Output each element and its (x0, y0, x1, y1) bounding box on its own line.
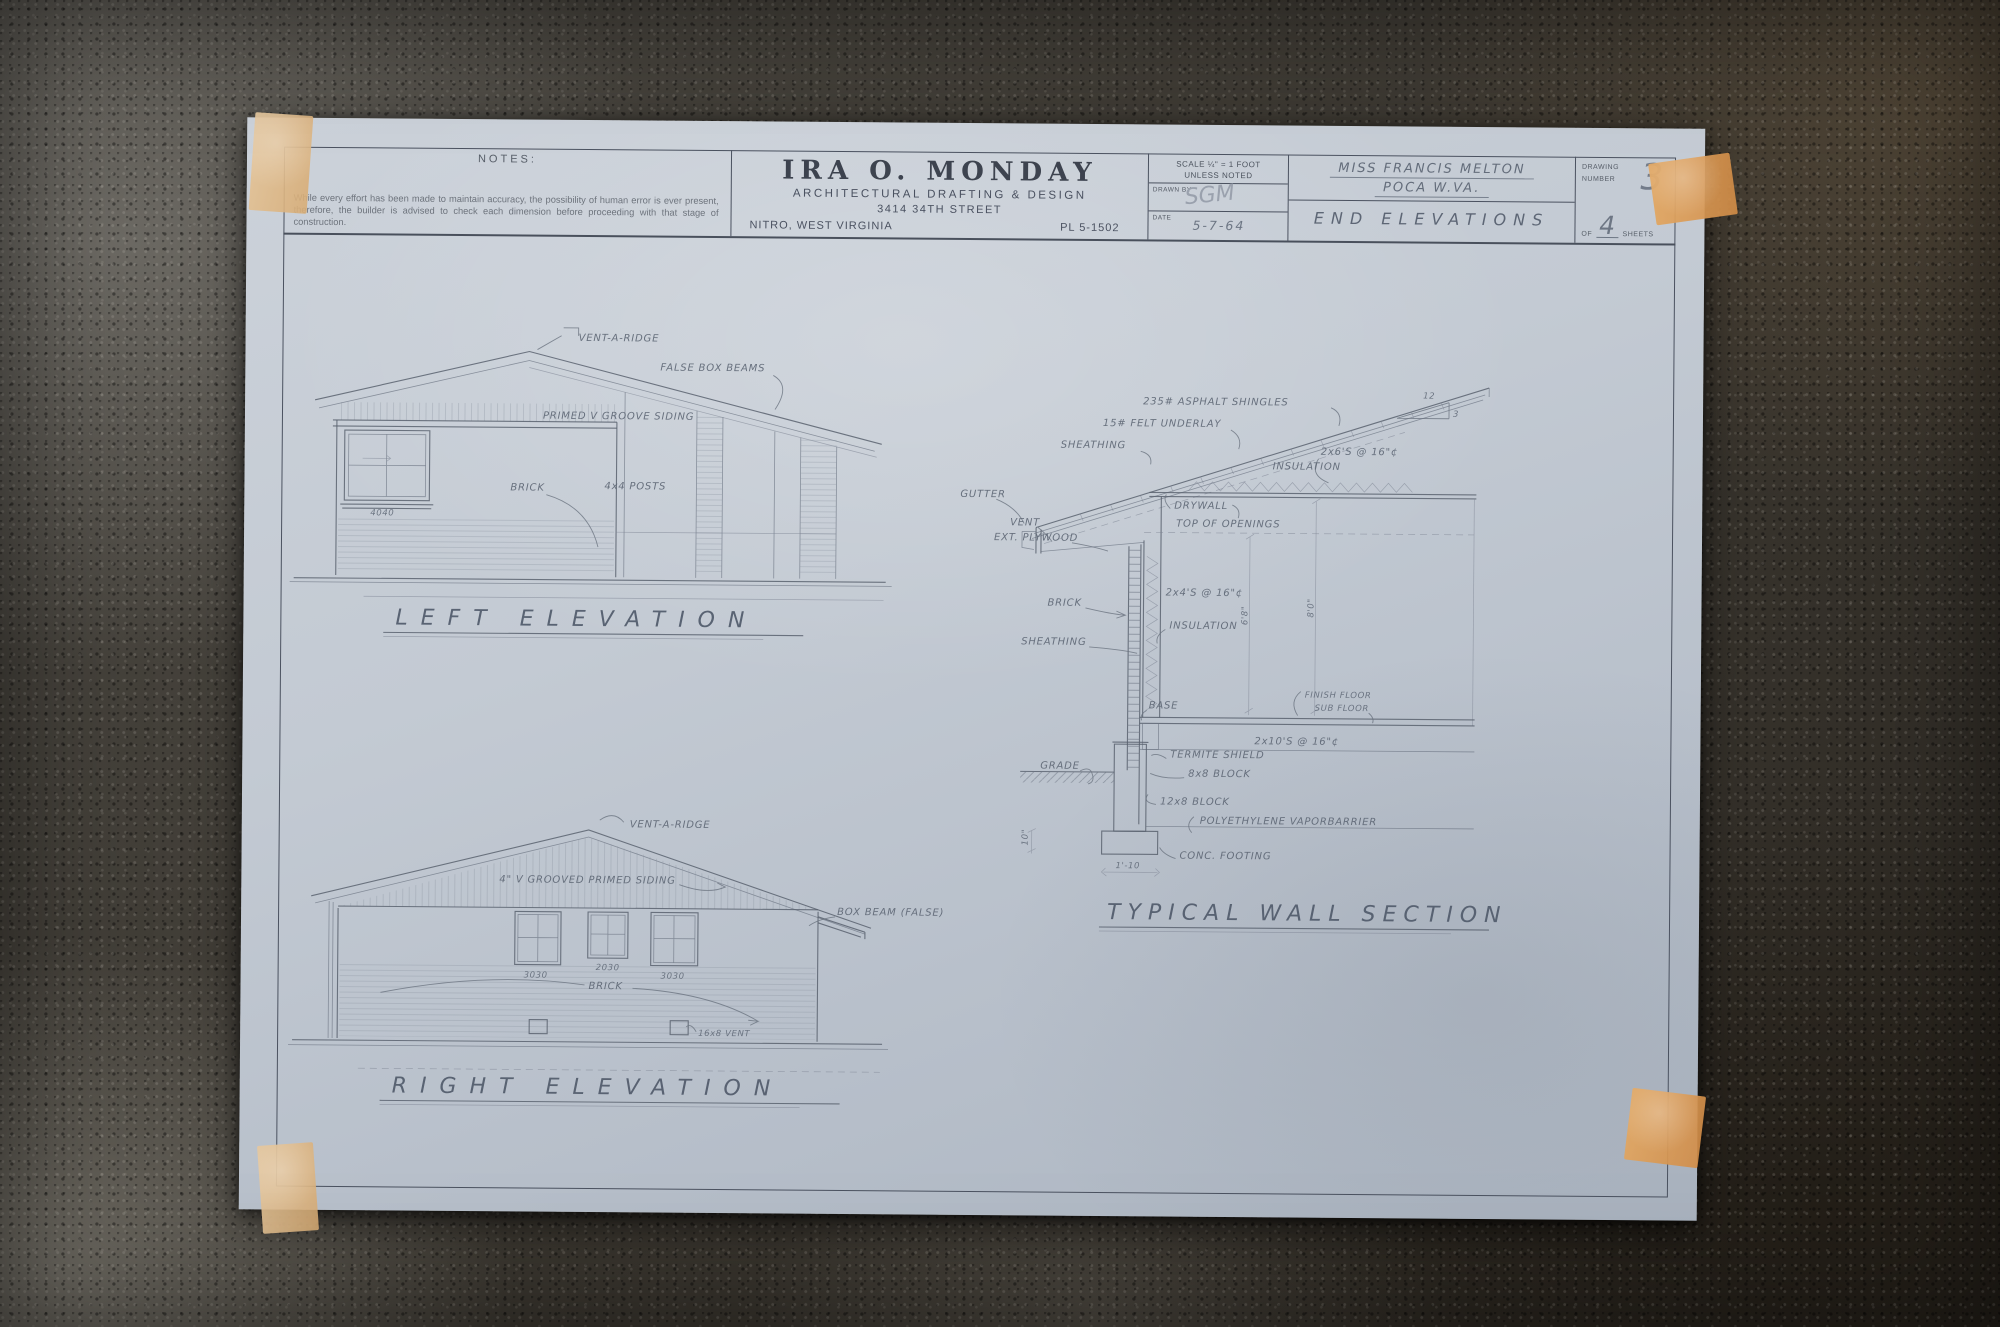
wall-section-drawing: 12 3 (957, 384, 1512, 934)
dim-8-0: 8'0" (1306, 598, 1316, 618)
label-conc-footing: CONC. FOOTING (1179, 851, 1271, 863)
label-wall-insulation: INSULATION (1169, 621, 1237, 633)
label-ceiling-insulation: INSULATION (1273, 461, 1341, 473)
label-brick-section: BRICK (1047, 598, 1082, 609)
label-brick-right: BRICK (588, 981, 623, 992)
label-asphalt-shingles: 235# ASPHALT SHINGLES (1143, 396, 1289, 408)
blueprint-sheet: NOTES: While every effort has been made … (239, 117, 1706, 1220)
label-8x8-block: 8x8 BLOCK (1188, 769, 1251, 780)
tape-bottom-right (1624, 1088, 1706, 1168)
label-grade: GRADE (1040, 761, 1080, 772)
tape-top-right (1648, 153, 1738, 226)
label-base: BASE (1149, 700, 1179, 711)
label-ext-plywood: EXT. PLYWOOD (994, 532, 1078, 544)
label-slope-12: 12 (1423, 392, 1435, 402)
label-felt-underlay: 15# FELT UNDERLAY (1103, 418, 1222, 430)
label-12x8-block: 12x8 BLOCK (1160, 796, 1230, 808)
label-box-beam-false: BOX BEAM (FALSE) (837, 907, 944, 919)
label-slope-3: 3 (1453, 410, 1459, 420)
label-gutter: GUTTER (960, 489, 1005, 500)
dim-10: 10" (1021, 829, 1031, 846)
pencil-drawings: VENT-A-RIDGE FALSE BOX BEAMS PRIMED V GR… (239, 117, 1706, 1220)
label-window-2030: 2030 (596, 963, 620, 973)
label-window-4040: 4040 (370, 508, 394, 518)
label-primed-groove-siding: PRIMED V GROOVE SIDING (543, 411, 694, 423)
label-roof-sheathing: SHEATHING (1061, 440, 1126, 452)
label-drywall: DRYWALL (1174, 501, 1228, 512)
label-sub-floor: SUB FLOOR (1315, 704, 1369, 714)
label-finish-floor: FINISH FLOOR (1305, 691, 1372, 702)
label-vapor-barrier: POLYETHYLENE VAPORBARRIER (1200, 816, 1377, 828)
label-vent-a-ridge-left: VENT-A-RIDGE (579, 333, 660, 345)
label-4x4-posts: 4x4 POSTS (604, 481, 666, 492)
label-false-box-beams: FALSE BOX BEAMS (660, 363, 765, 375)
label-2x6-rafters: 2x6'S @ 16"¢ (1321, 447, 1398, 459)
label-vent-a-ridge-right: VENT-A-RIDGE (630, 819, 711, 831)
dim-6-8: 6'8" (1240, 606, 1250, 626)
dim-1-10: 1'-10 (1115, 861, 1140, 871)
label-brick-left: BRICK (510, 482, 545, 493)
label-top-of-openings: TOP OF OPENINGS (1176, 519, 1280, 531)
left-elevation-title: LEFT ELEVATION (395, 605, 757, 633)
wall-section-title: TYPICAL WALL SECTION (1107, 900, 1508, 928)
label-termite-shield: TERMITE SHIELD (1170, 750, 1264, 762)
label-2x4-studs: 2x4'S @ 16"¢ (1166, 588, 1243, 600)
label-v-grooved-siding: 4" V GROOVED PRIMED SIDING (499, 874, 675, 886)
label-vent: VENT (1010, 517, 1040, 528)
label-16x8-vent: 16x8 VENT (698, 1029, 750, 1039)
right-elevation-title: RIGHT ELEVATION (392, 1073, 784, 1101)
label-wall-sheathing: SHEATHING (1021, 636, 1086, 648)
left-elevation-drawing: VENT-A-RIDGE FALSE BOX BEAMS PRIMED V GR… (289, 326, 893, 641)
label-window-3030-left: 3030 (524, 970, 548, 980)
label-window-3030-right: 3030 (661, 972, 685, 982)
right-elevation-drawing: VENT-A-RIDGE 4" V GROOVED PRIMED SIDING … (288, 813, 945, 1109)
tape-bottom-left (257, 1142, 319, 1234)
tape-top-left (249, 112, 314, 214)
label-2x10-joists: 2x10'S @ 16"¢ (1254, 736, 1339, 748)
photo-of-blueprint: NOTES: While every effort has been made … (0, 0, 2000, 1327)
